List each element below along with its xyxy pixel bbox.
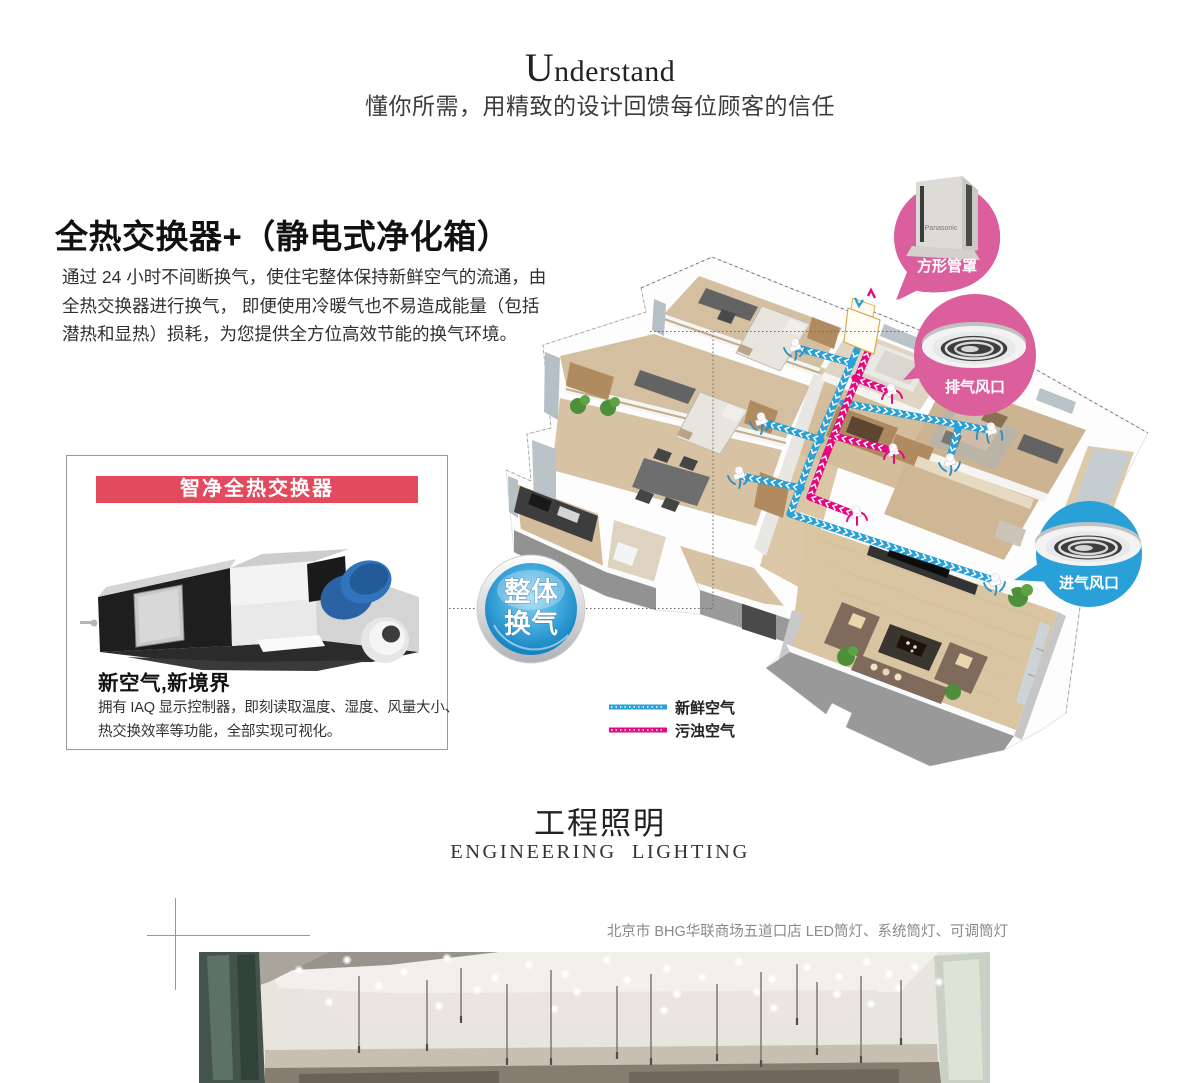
svg-text:方形管罩: 方形管罩	[917, 257, 977, 275]
svg-text:Panasonic: Panasonic	[925, 225, 958, 232]
svg-text:污浊空气: 污浊空气	[675, 722, 735, 740]
svg-text:整体: 整体	[504, 577, 559, 607]
svg-text:换气: 换气	[504, 609, 558, 639]
svg-text:进气风口: 进气风口	[1059, 574, 1119, 592]
svg-text:排气风口: 排气风口	[945, 378, 1005, 396]
svg-text:新鲜空气: 新鲜空气	[675, 699, 735, 717]
